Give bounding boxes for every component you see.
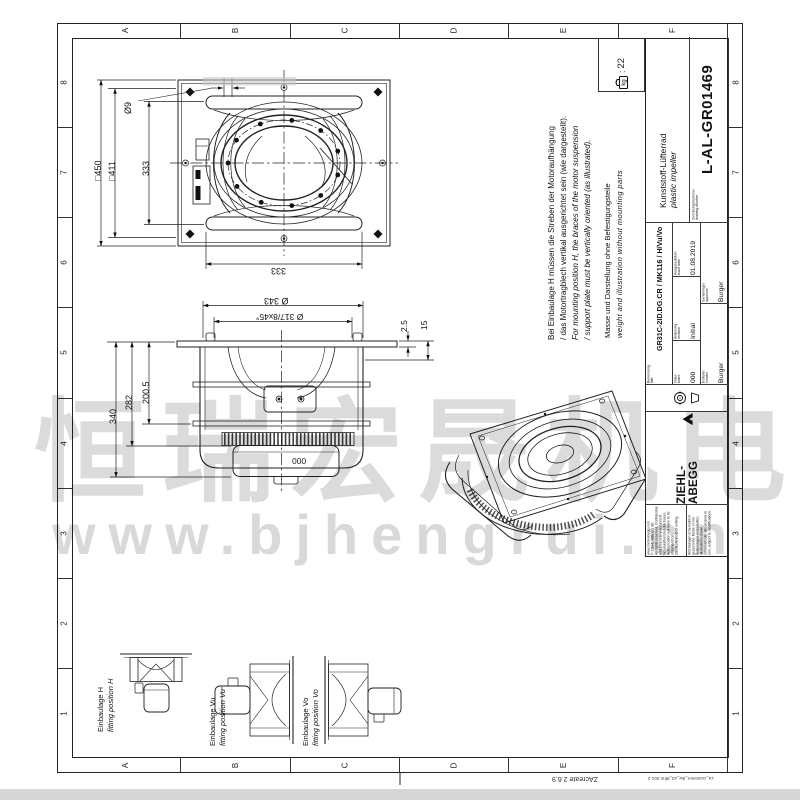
schematic-note-cell: Abbildungen schematisch gezeichnet. Maße…: [687, 504, 729, 556]
first-angle-projection-icon: [673, 390, 703, 406]
dim-bolt-circle: Ø 317/8x45°: [256, 312, 303, 322]
kg-weight-icon: kg: [614, 75, 629, 90]
index-value: 000: [690, 342, 697, 383]
dim-total-height: 340: [108, 396, 120, 424]
dim-hole-dia: Ø9: [123, 92, 135, 114]
projection-symbol: [646, 384, 729, 411]
creator-value: Burger: [718, 305, 725, 383]
fitting-label-h: Einbaulage H fitting position H: [96, 648, 118, 732]
fitting-sketch-h: [120, 654, 192, 712]
rights-line-3: ZIEHL-ABEGG in writing.: [675, 506, 679, 555]
dim-width-333: 333: [271, 266, 286, 276]
product-name-en: plastic impeller: [668, 37, 678, 208]
side-view: [177, 330, 397, 492]
creator-cell: Erstellercreator Burger: [701, 303, 729, 384]
weight-separator: :: [617, 70, 627, 73]
drawing-sheet: A B C D E F A B C D E F 8 7 6 5 4 3 2 1 …: [0, 0, 800, 800]
drawing-no-value: L-AL-GR01469: [699, 65, 716, 174]
svg-text:kg: kg: [622, 79, 628, 85]
mounting-note-en-2: / support plate must be vertically orien…: [582, 92, 594, 340]
fitting-label-vu: Einbaulage Vu fitting position Vu: [208, 652, 230, 746]
dim-housing-height: 282: [124, 382, 136, 410]
weight-note: Masse und Darstellung ohne Befestigungst…: [602, 166, 630, 338]
dim-height-333: 333: [141, 150, 153, 176]
isometric-view: [445, 391, 651, 540]
motor-marking: 000: [292, 456, 306, 466]
front-view: [170, 70, 398, 256]
weight-note-en: weight and illustration without mounting…: [614, 166, 626, 338]
schematic-note-en: Illustrations drawn schematically, dimen…: [700, 506, 712, 555]
title-cell: Benennung title GR31C-2ID.DG.CR / MK116 …: [646, 222, 673, 384]
mounting-note-en-1: For mounting position H, the braces of t…: [570, 92, 582, 340]
title-value: GR31C-2ID.DG.CR / MK116 / H/Vu/Vo: [655, 227, 664, 351]
dim-outer-square: □450: [93, 145, 105, 181]
weight-note-de: Masse und Darstellung ohne Befestigungst…: [602, 166, 614, 338]
dim-plate-thickness: 2.5: [399, 308, 410, 332]
approver-value: Burger: [718, 224, 725, 302]
drawing-no-label-en: drawing number: [696, 180, 700, 220]
mounting-note-de-2: / das Motortragblech vertikal ausgericht…: [558, 92, 570, 340]
fitting-sketch-vo: [325, 656, 401, 744]
watermark-band: [0, 789, 800, 800]
title-label-en: title: [651, 353, 655, 383]
issue-date-cell: Ausgabedatumissue date 01.08.2019: [673, 222, 701, 276]
weight-number: 22: [616, 58, 627, 69]
drawing-number-cell: Zeichnungsnummer drawing number L-AL-GR0…: [690, 37, 729, 222]
dim-offset-15: 15: [419, 312, 430, 330]
rights-line-1: All rights reserved. Confidential and pr…: [655, 506, 663, 555]
weight-value: kg : 22: [601, 40, 642, 90]
logo-triangle-icon: [681, 412, 694, 426]
dim-bolt-square: □411: [107, 145, 119, 181]
company-logo: ZIEHL-ABEGG: [646, 411, 729, 504]
approver-cell: Genehmigerapprover Burger: [701, 222, 729, 303]
product-name-de: Kunststoff-Lüfterrad: [658, 37, 668, 208]
mounting-note-de-1: Bei Einbaulage H müssen die Streben der …: [546, 92, 558, 340]
mounting-note: Bei Einbaulage H müssen die Streben der …: [546, 92, 596, 340]
scan-artifact: [203, 77, 296, 86]
revision-value: Initial: [690, 278, 697, 339]
rights-line-2: No unauthorized disclosure. Authorizatio…: [663, 506, 675, 555]
side-view-dimensions: [107, 301, 434, 477]
app-version: ZAcreate 2.6.9: [552, 775, 598, 782]
revision-cell: Änderungrevision Initial: [673, 276, 701, 340]
dim-outer-dia: Ø 343: [264, 296, 289, 306]
schematic-note-de: Abbildungen schematisch gezeichnet. Maße…: [688, 506, 700, 555]
issue-date-value: 01.08.2019: [690, 224, 697, 275]
dim-flange-height: 200.5: [141, 368, 153, 404]
product-name-cell: Kunststoff-Lüfterrad plastic impeller: [646, 37, 690, 222]
logo-text: ZIEHL-ABEGG: [676, 429, 700, 504]
fitting-label-vo: Einbaulage Vo fitting position Vo: [301, 652, 323, 746]
copyright-cell: www.ziehl-abegg.com © ZIEHL-ABEGG SE All…: [646, 504, 687, 556]
index-cell: Indexindex 000: [673, 340, 701, 384]
template-ref: za_customer_dw_a3_8frm 001 2: [648, 776, 714, 781]
title-block: www.ziehl-abegg.com © ZIEHL-ABEGG SE All…: [645, 38, 728, 557]
